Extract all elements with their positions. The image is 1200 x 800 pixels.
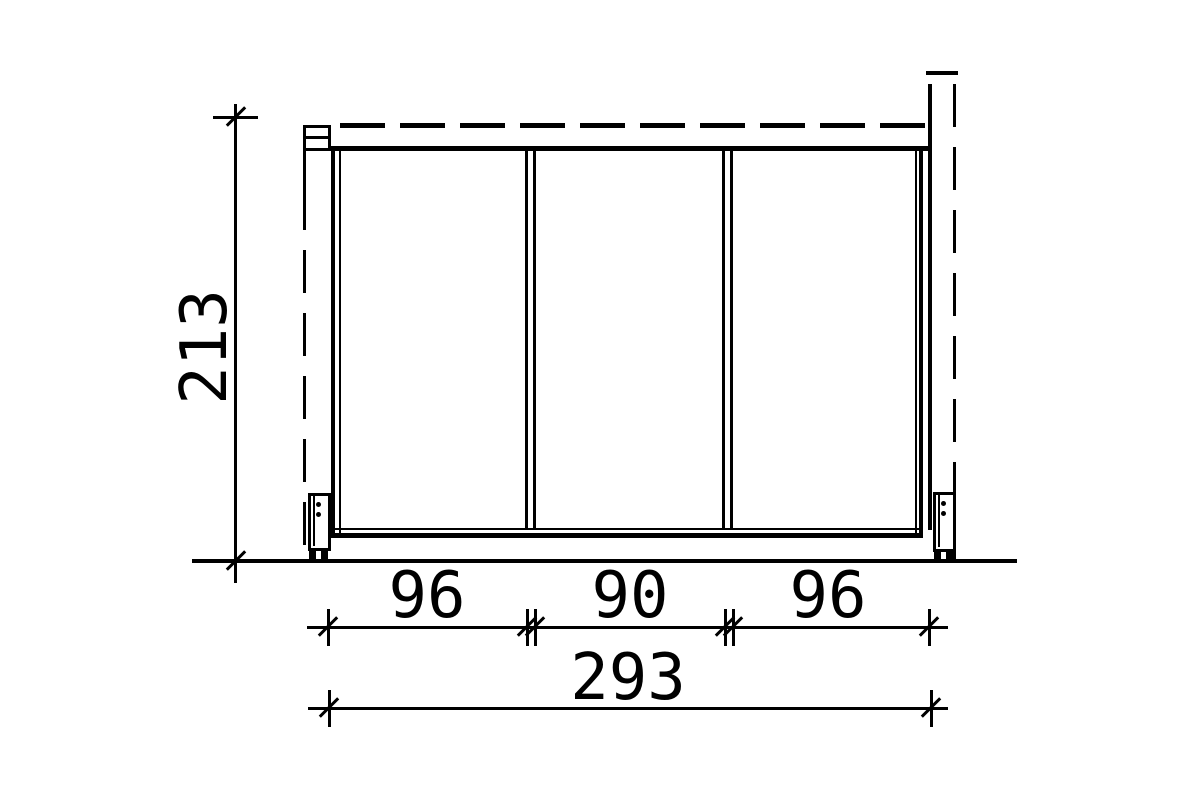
right-post-hidden-edge <box>953 84 956 560</box>
panel-divider <box>533 151 536 529</box>
height-dimension-label: 213 <box>181 257 229 437</box>
frame-right-stile-inner <box>915 151 917 537</box>
right-post-edge <box>928 84 932 530</box>
drawing-canvas: 213 <box>0 0 1200 800</box>
bottom-rail-top-edge <box>331 528 923 530</box>
frame-left-stile <box>331 151 335 537</box>
anchor-foot <box>934 550 941 562</box>
post-anchor-slot-line <box>938 495 940 547</box>
anchor-foot <box>321 549 328 561</box>
panel-divider <box>525 151 528 529</box>
panel-divider <box>730 151 733 529</box>
anchor-foot <box>309 549 316 561</box>
segment-2-label: 90 <box>550 572 710 620</box>
total-width-label: 293 <box>548 654 708 702</box>
post-anchor-slot-line <box>313 496 315 546</box>
beam-end-section-line <box>303 136 331 139</box>
segment-1-label: 96 <box>347 572 507 620</box>
top-beam-bottom-edge <box>330 146 928 151</box>
bottom-rail-bottom-edge <box>331 533 923 538</box>
anchor-screw <box>316 502 321 507</box>
frame-right-stile <box>919 151 923 537</box>
anchor-screw <box>941 511 946 516</box>
segment-3-label: 96 <box>748 572 908 620</box>
panel-divider <box>722 151 725 529</box>
left-post-hidden-edge <box>303 187 306 560</box>
top-beam-hidden-edge <box>340 123 925 128</box>
right-post-cap <box>926 71 958 75</box>
anchor-foot <box>946 550 953 562</box>
anchor-screw <box>316 512 321 517</box>
anchor-screw <box>941 501 946 506</box>
frame-left-stile-inner <box>339 151 341 537</box>
